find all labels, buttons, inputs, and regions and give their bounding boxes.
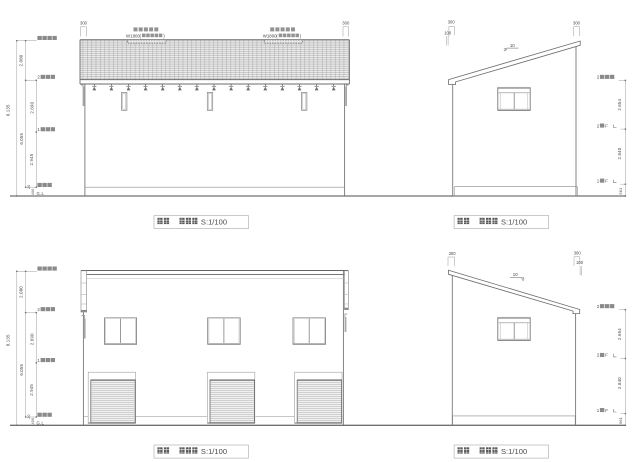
svg-text:8.135: 8.135 bbox=[6, 334, 11, 346]
svg-text:1: 1 bbox=[37, 358, 40, 363]
svg-text:6.055: 6.055 bbox=[19, 133, 24, 145]
svg-text:S:1/100: S:1/100 bbox=[501, 447, 527, 456]
svg-text:2: 2 bbox=[37, 75, 40, 80]
svg-text:2.080: 2.080 bbox=[19, 286, 24, 298]
svg-text:10: 10 bbox=[513, 272, 518, 277]
svg-text:100: 100 bbox=[444, 30, 452, 35]
svg-text:561: 561 bbox=[618, 417, 623, 424]
svg-text:300: 300 bbox=[574, 251, 582, 256]
svg-text:2.080: 2.080 bbox=[19, 54, 24, 66]
svg-text:2.654: 2.654 bbox=[617, 99, 622, 111]
svg-text:2: 2 bbox=[597, 304, 600, 309]
svg-text:2: 2 bbox=[37, 307, 40, 312]
svg-text:2: 2 bbox=[597, 123, 600, 128]
svg-text:2.945: 2.945 bbox=[29, 384, 34, 396]
svg-text:300: 300 bbox=[449, 251, 457, 256]
svg-text:2.840: 2.840 bbox=[617, 147, 622, 159]
svg-text:2.945: 2.945 bbox=[29, 153, 34, 165]
svg-text:F: F bbox=[605, 353, 608, 358]
svg-text:1: 1 bbox=[597, 178, 600, 183]
svg-text:W1800: W1800 bbox=[126, 33, 140, 38]
svg-text:561: 561 bbox=[618, 188, 623, 195]
svg-text:F: F bbox=[605, 408, 608, 413]
svg-text:2.690: 2.690 bbox=[29, 333, 34, 345]
svg-text:S:1/100: S:1/100 bbox=[201, 217, 227, 226]
svg-text:1: 1 bbox=[597, 408, 600, 413]
svg-text:100: 100 bbox=[576, 260, 584, 265]
svg-text:300: 300 bbox=[342, 21, 350, 26]
svg-text:300: 300 bbox=[80, 21, 88, 26]
svg-text:300: 300 bbox=[573, 21, 581, 26]
svg-text:2.840: 2.840 bbox=[617, 377, 622, 389]
svg-text:300: 300 bbox=[448, 20, 456, 25]
svg-text:2.690: 2.690 bbox=[29, 101, 34, 113]
svg-text:10: 10 bbox=[510, 43, 515, 48]
svg-text:8.135: 8.135 bbox=[6, 104, 11, 116]
svg-text:400: 400 bbox=[31, 418, 35, 425]
svg-text:2: 2 bbox=[597, 75, 600, 80]
svg-text:W1800: W1800 bbox=[263, 33, 277, 38]
svg-text:S:1/100: S:1/100 bbox=[201, 447, 227, 456]
svg-text:2.654: 2.654 bbox=[617, 328, 622, 340]
svg-text:20: 20 bbox=[27, 184, 31, 188]
svg-text:1: 1 bbox=[37, 127, 40, 132]
svg-text:400: 400 bbox=[31, 188, 35, 195]
svg-text:6.055: 6.055 bbox=[19, 364, 24, 376]
svg-text:F: F bbox=[605, 123, 608, 128]
svg-text:S:1/100: S:1/100 bbox=[501, 217, 527, 226]
svg-text:2: 2 bbox=[597, 353, 600, 358]
svg-text:F: F bbox=[605, 178, 608, 183]
